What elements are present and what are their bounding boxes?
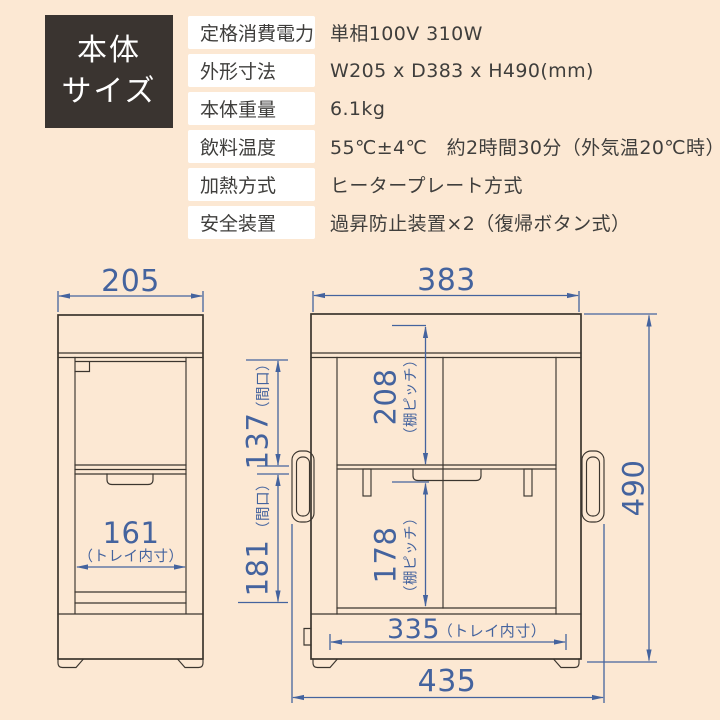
upper-opening-dimension: 137	[241, 413, 275, 470]
front-tray-width-dimension: 161	[103, 516, 160, 550]
side-handle-left-inner	[297, 457, 310, 516]
front-body-outline	[58, 315, 203, 659]
upper-shelf-pitch-note: （棚ピッチ）	[402, 352, 419, 442]
overall-depth-dimension: 435	[418, 664, 477, 699]
lower-shelf-pitch-dimension: 178	[369, 527, 403, 584]
dimension-diagram: 205 161 （トレイ内寸） 137 （間口） 181 （間口） 383 20…	[0, 0, 720, 720]
side-shelf-clip-left	[363, 469, 371, 496]
upper-opening-note: （間口）	[255, 356, 272, 416]
side-depth-dimension: 383	[417, 263, 476, 298]
side-power-switch-tab	[304, 629, 311, 646]
product-size-infographic: 本体 サイズ 定格消費電力 単相100V 310W 外形寸法 W205 x D3…	[0, 0, 720, 720]
side-tray-slot	[413, 470, 481, 481]
side-view-drawing	[292, 314, 604, 668]
lower-shelf-pitch-note: （棚ピッチ）	[402, 510, 419, 600]
side-shelf-lines	[337, 465, 556, 469]
tray-depth-dimension: 335	[387, 614, 440, 645]
front-tray-width-note: （トレイ内寸）	[79, 548, 184, 565]
front-width-dimension: 205	[101, 264, 160, 299]
front-drawer-handle-notch	[107, 474, 153, 485]
front-door-handle-tab	[75, 362, 90, 372]
front-view-drawing	[58, 315, 203, 668]
height-dimension: 490	[617, 460, 651, 517]
lower-opening-dimension: 181	[241, 540, 275, 597]
side-lid-lines	[311, 353, 581, 358]
side-shelf-clip-right	[524, 469, 532, 496]
front-feet	[58, 659, 203, 668]
upper-shelf-pitch-dimension: 208	[369, 369, 403, 426]
front-inner-frame	[75, 358, 186, 614]
side-body-outline	[311, 314, 581, 659]
lower-opening-note: （間口）	[255, 476, 272, 536]
side-handle-right-outer	[582, 451, 604, 522]
side-handle-right-inner	[587, 457, 600, 516]
front-lid-lines	[58, 353, 203, 358]
front-drawer-bottom-lines	[75, 592, 186, 603]
tray-depth-note: （トレイ内寸）	[438, 622, 547, 640]
front-shelf-lines	[75, 465, 186, 474]
